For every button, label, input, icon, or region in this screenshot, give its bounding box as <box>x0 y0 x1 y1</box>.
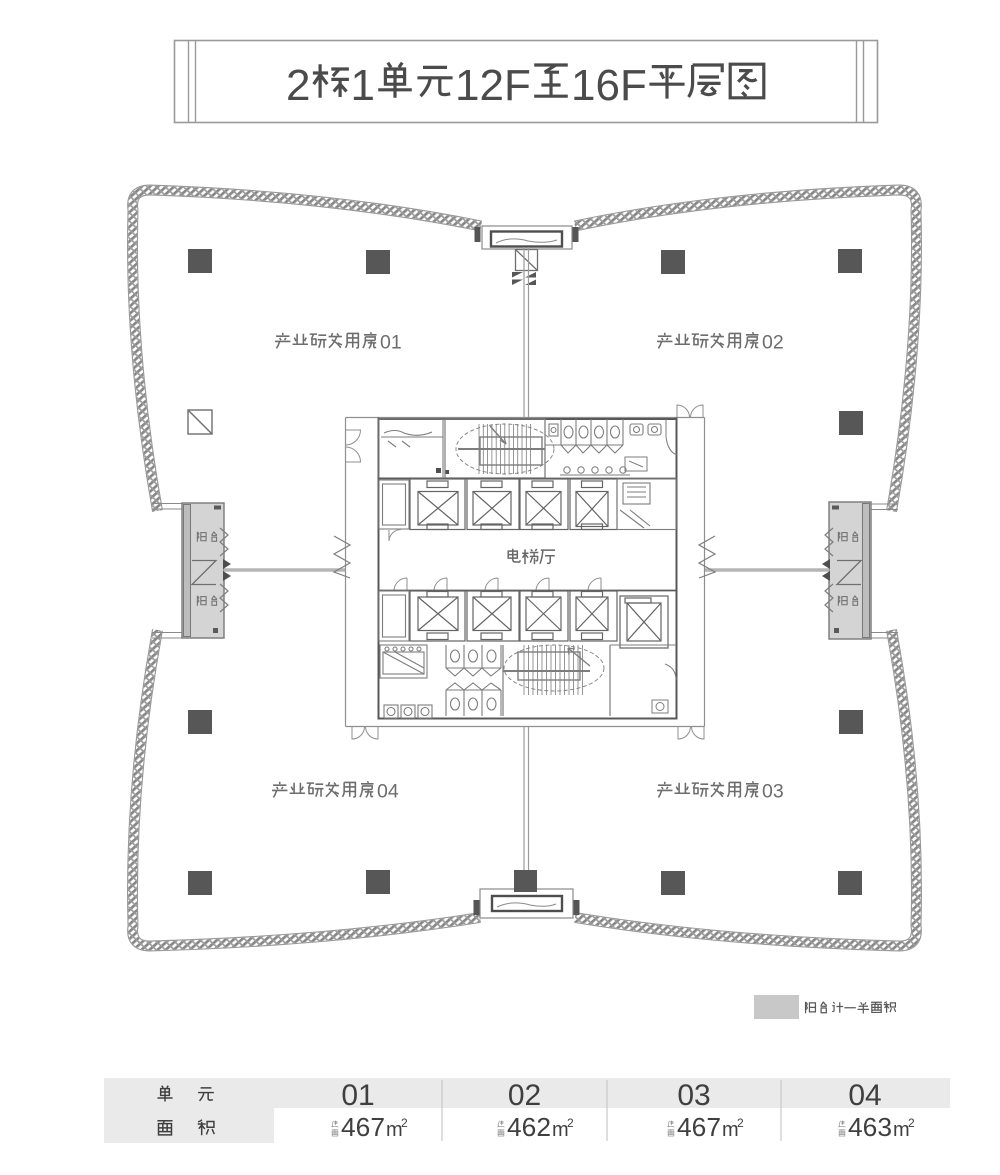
svg-text:2: 2 <box>286 61 310 110</box>
svg-text:2: 2 <box>567 1116 574 1130</box>
svg-text:467: 467 <box>341 1112 385 1142</box>
svg-text:1: 1 <box>351 61 375 110</box>
svg-text:03: 03 <box>762 781 784 803</box>
svg-text:16F: 16F <box>571 61 647 110</box>
svg-text:02: 02 <box>762 332 784 354</box>
svg-text:02: 02 <box>508 1079 541 1112</box>
svg-text:03: 03 <box>677 1079 710 1112</box>
svg-text:04: 04 <box>377 781 399 803</box>
svg-text:463: 463 <box>848 1112 892 1142</box>
svg-text:12F: 12F <box>455 61 531 110</box>
svg-text:04: 04 <box>848 1079 881 1112</box>
svg-text:467: 467 <box>677 1112 721 1142</box>
svg-text:2: 2 <box>401 1116 408 1130</box>
svg-text:462: 462 <box>507 1112 551 1142</box>
svg-text:01: 01 <box>341 1079 374 1112</box>
svg-text:01: 01 <box>380 332 402 354</box>
svg-text:2: 2 <box>908 1116 915 1130</box>
svg-text:2: 2 <box>737 1116 744 1130</box>
